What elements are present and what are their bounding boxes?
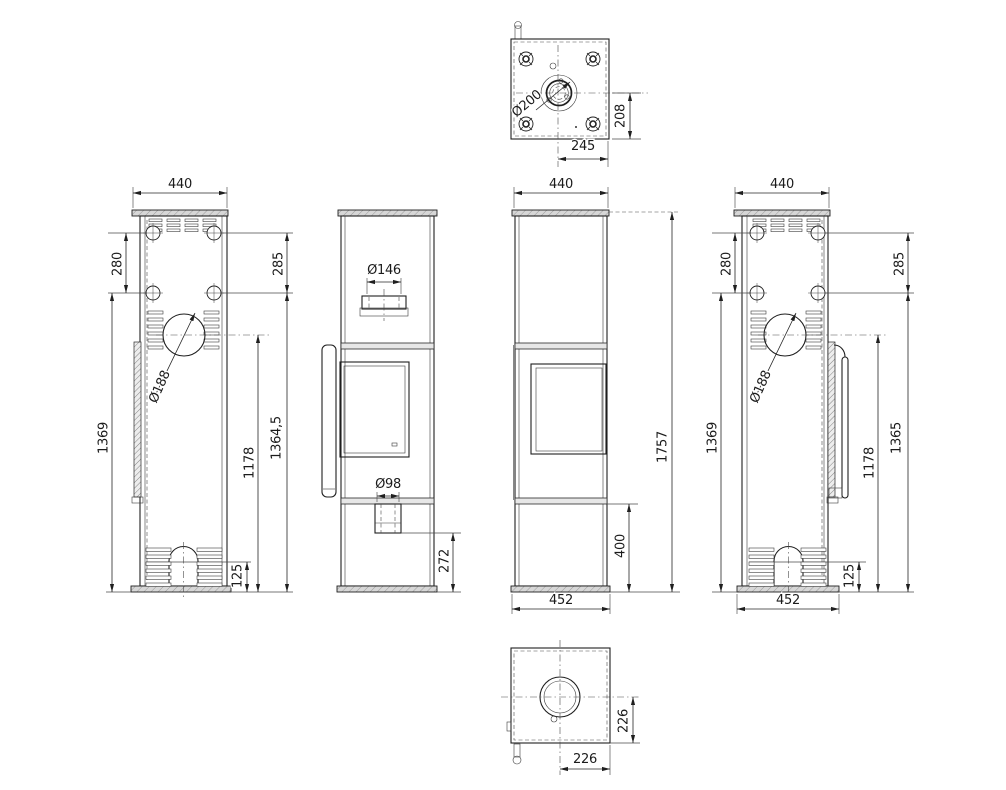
dim-label-440-side: 440 (549, 177, 573, 192)
dim-label-280-left: 280 (111, 252, 126, 276)
door-edge-strip (134, 342, 141, 497)
glass-door-frame (340, 362, 409, 457)
dim-label-452-right: 452 (776, 593, 800, 608)
rear-right-view: Ø188 440 280 1369 285 1365 1178 125 452 (706, 177, 915, 614)
dim-label-dia200: Ø200 (509, 87, 545, 120)
base-plate (131, 586, 231, 592)
dim-label-440-left: 440 (168, 177, 192, 192)
top-view: Ø200 208 245 (509, 22, 648, 168)
handle-hook (834, 345, 845, 357)
door-handle-bar (322, 345, 336, 497)
dim-label-dia146: Ø146 (367, 263, 401, 278)
dim-label-dia188-right: Ø188 (747, 368, 774, 405)
bottom-view: 226 226 (501, 640, 640, 775)
dim-label-452-side: 452 (549, 593, 573, 608)
top-cover-plate (132, 210, 228, 216)
dim-label-dia188-left: Ø188 (146, 368, 173, 405)
technical-drawing-page: Ø200 208 245 Ø188 440 280 1369 285 1364,… (0, 0, 1006, 790)
stove-dimension-drawing: Ø200 208 245 Ø188 440 280 1369 285 1364,… (0, 0, 1006, 790)
flue-collar (541, 75, 577, 111)
dim-label-1369-left: 1369 (97, 422, 112, 454)
dim-label-285-left: 285 (272, 252, 287, 276)
rear-left-view: Ø188 440 280 1369 285 1364,5 1178 125 (97, 177, 294, 598)
dim-label-285-right: 285 (893, 252, 908, 276)
dim-label-1369-right: 1369 (706, 422, 721, 454)
door-edge-strip-right (828, 342, 835, 497)
side-view: 440 1757 400 452 (511, 177, 680, 614)
dim-label-245: 245 (571, 139, 595, 154)
dim-label-272: 272 (438, 549, 453, 573)
dim-label-208: 208 (614, 104, 629, 128)
bottom-plate-outline (511, 648, 610, 743)
dim-label-280-right: 280 (720, 252, 735, 276)
dim-label-dia98: Ø98 (375, 477, 401, 492)
dim-label-400: 400 (614, 534, 629, 558)
dim-label-1365: 1365 (890, 422, 905, 454)
dim-label-440-right: 440 (770, 177, 794, 192)
glass-pane (344, 366, 405, 453)
damper-rod-bottom (514, 744, 520, 757)
handle-rod (842, 357, 848, 498)
dim-label-226-h: 226 (573, 752, 597, 767)
air-inlet-pipe (375, 504, 401, 533)
dim-label-125-right: 125 (843, 564, 858, 588)
dim-label-1757: 1757 (656, 431, 671, 463)
front-view: Ø146 Ø98 272 (322, 210, 461, 592)
dim-label-1178-right: 1178 (863, 447, 878, 479)
dim-label-1178-left: 1178 (243, 447, 258, 479)
dim-label-226-v: 226 (617, 709, 632, 733)
dim-label-1364-5: 1364,5 (270, 416, 285, 460)
side-glass-frame (531, 364, 606, 454)
dim-label-125-left: 125 (231, 564, 246, 588)
